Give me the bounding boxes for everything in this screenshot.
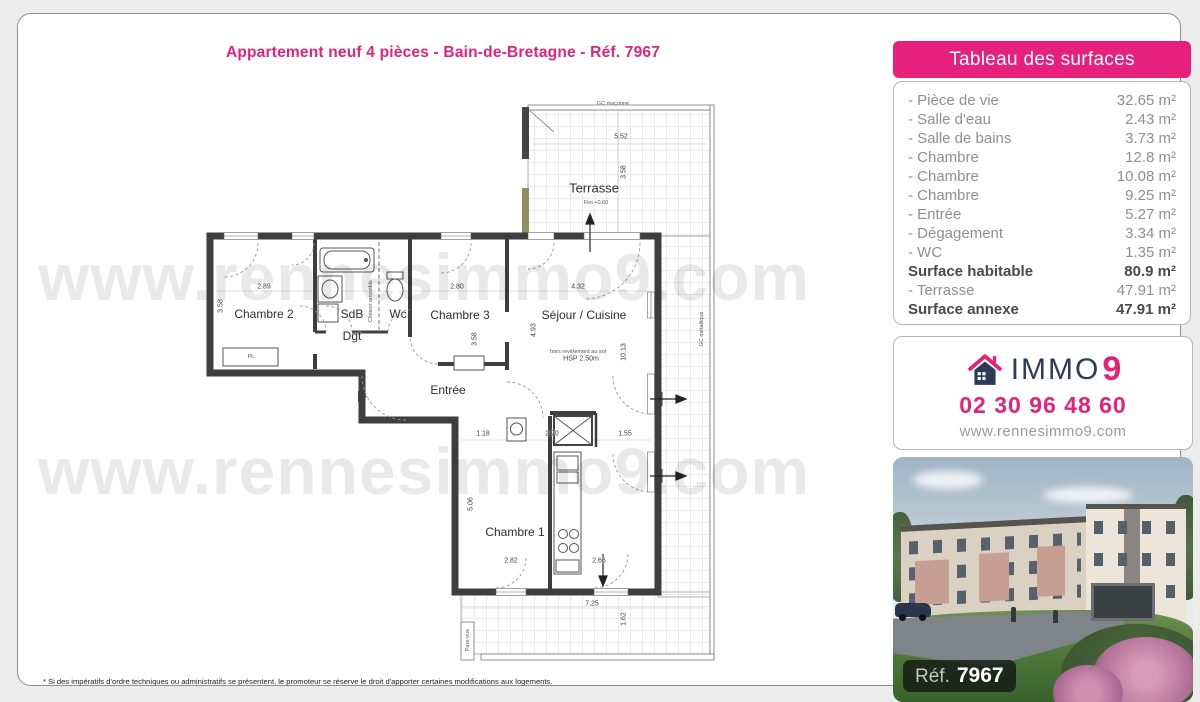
reference-label: Réf. bbox=[915, 666, 950, 688]
surface-row: - Chambre12.8 m² bbox=[908, 148, 1176, 167]
building-photo: Réf. 7967 bbox=[893, 457, 1193, 702]
surface-row: - Terrasse47.91 m² bbox=[908, 281, 1176, 300]
surface-row: - Chambre10.08 m² bbox=[908, 167, 1176, 186]
surface-row: - Chambre9.25 m² bbox=[908, 186, 1176, 205]
surface-row-label: - Salle d'eau bbox=[908, 110, 991, 129]
surface-row-value: 32.65 m² bbox=[1117, 91, 1176, 110]
surface-row-label: - Chambre bbox=[908, 186, 979, 205]
surfaces-panel-header: Tableau des surfaces bbox=[893, 41, 1191, 78]
agency-card: IMMO 9 02 30 96 48 60 www.rennesimmo9.co… bbox=[893, 336, 1193, 450]
balcony bbox=[915, 559, 949, 605]
surface-row-label: Surface annexe bbox=[908, 300, 1019, 319]
surface-row-value: 80.9 m² bbox=[1124, 262, 1176, 281]
surface-row-label: - Chambre bbox=[908, 167, 979, 186]
surface-row: - Salle de bains3.73 m² bbox=[908, 129, 1176, 148]
cloud bbox=[913, 471, 983, 489]
agency-logo: IMMO 9 bbox=[894, 350, 1192, 389]
cyclist bbox=[1053, 610, 1058, 623]
surface-row-value: 3.34 m² bbox=[1125, 224, 1176, 243]
surface-row-value: 5.27 m² bbox=[1125, 205, 1176, 224]
surfaces-table: - Pièce de vie32.65 m²- Salle d'eau2.43 … bbox=[893, 81, 1191, 325]
surface-row: - Pièce de vie32.65 m² bbox=[908, 91, 1176, 110]
surface-row-value: 12.8 m² bbox=[1125, 148, 1176, 167]
surface-row-value: 9.25 m² bbox=[1125, 186, 1176, 205]
surface-row-label: - Entrée bbox=[908, 205, 961, 224]
floor-plan-svg bbox=[198, 102, 720, 677]
house-icon bbox=[965, 352, 1005, 388]
surface-rows: - Pièce de vie32.65 m²- Salle d'eau2.43 … bbox=[908, 91, 1176, 319]
balcony bbox=[1037, 545, 1065, 596]
surface-row-label: - Pièce de vie bbox=[908, 91, 999, 110]
surface-row-value: 2.43 m² bbox=[1125, 110, 1176, 129]
surface-row: - Salle d'eau2.43 m² bbox=[908, 110, 1176, 129]
surface-row-value: 47.91 m² bbox=[1116, 300, 1176, 319]
balcony bbox=[979, 552, 1009, 602]
window-row bbox=[1094, 553, 1178, 566]
cloud bbox=[1043, 487, 1133, 503]
surface-row-value: 10.08 m² bbox=[1117, 167, 1176, 186]
reference-number: 7967 bbox=[957, 664, 1004, 688]
brand-immo: IMMO bbox=[1011, 353, 1101, 387]
surface-row-label: - Chambre bbox=[908, 148, 979, 167]
surface-row-value: 47.91 m² bbox=[1117, 281, 1176, 300]
pedestrian bbox=[1011, 607, 1016, 622]
surface-row-label: - WC bbox=[908, 243, 942, 262]
apartment-walls bbox=[210, 236, 706, 608]
surface-row-label: - Dégagement bbox=[908, 224, 1003, 243]
floor-plan bbox=[198, 102, 720, 677]
agency-phone[interactable]: 02 30 96 48 60 bbox=[894, 392, 1192, 419]
surface-row-label: Surface habitable bbox=[908, 262, 1033, 281]
surface-row-label: - Terrasse bbox=[908, 281, 974, 300]
surface-row-label: - Salle de bains bbox=[908, 129, 1011, 148]
footnote: * Si des impératifs d'ordre techniques o… bbox=[43, 677, 552, 686]
surface-row: Surface annexe47.91 m² bbox=[908, 300, 1176, 319]
reference-badge: Réf. 7967 bbox=[903, 660, 1016, 692]
garage-door bbox=[1091, 583, 1155, 621]
agency-website-link[interactable]: www.rennesimmo9.com bbox=[894, 423, 1192, 440]
surface-row-value: 1.35 m² bbox=[1125, 243, 1176, 262]
brand-digit: 9 bbox=[1102, 350, 1121, 389]
page-title: Appartement neuf 4 pièces - Bain-de-Bret… bbox=[48, 44, 838, 62]
surface-row: Surface habitable80.9 m² bbox=[908, 262, 1176, 281]
surface-row: - Dégagement3.34 m² bbox=[908, 224, 1176, 243]
surface-row-value: 3.73 m² bbox=[1125, 129, 1176, 148]
window-row bbox=[1094, 521, 1178, 534]
page-card: Appartement neuf 4 pièces - Bain-de-Bret… bbox=[17, 13, 1181, 686]
car bbox=[895, 603, 931, 617]
surface-row: - WC1.35 m² bbox=[908, 243, 1176, 262]
surface-row: - Entrée5.27 m² bbox=[908, 205, 1176, 224]
